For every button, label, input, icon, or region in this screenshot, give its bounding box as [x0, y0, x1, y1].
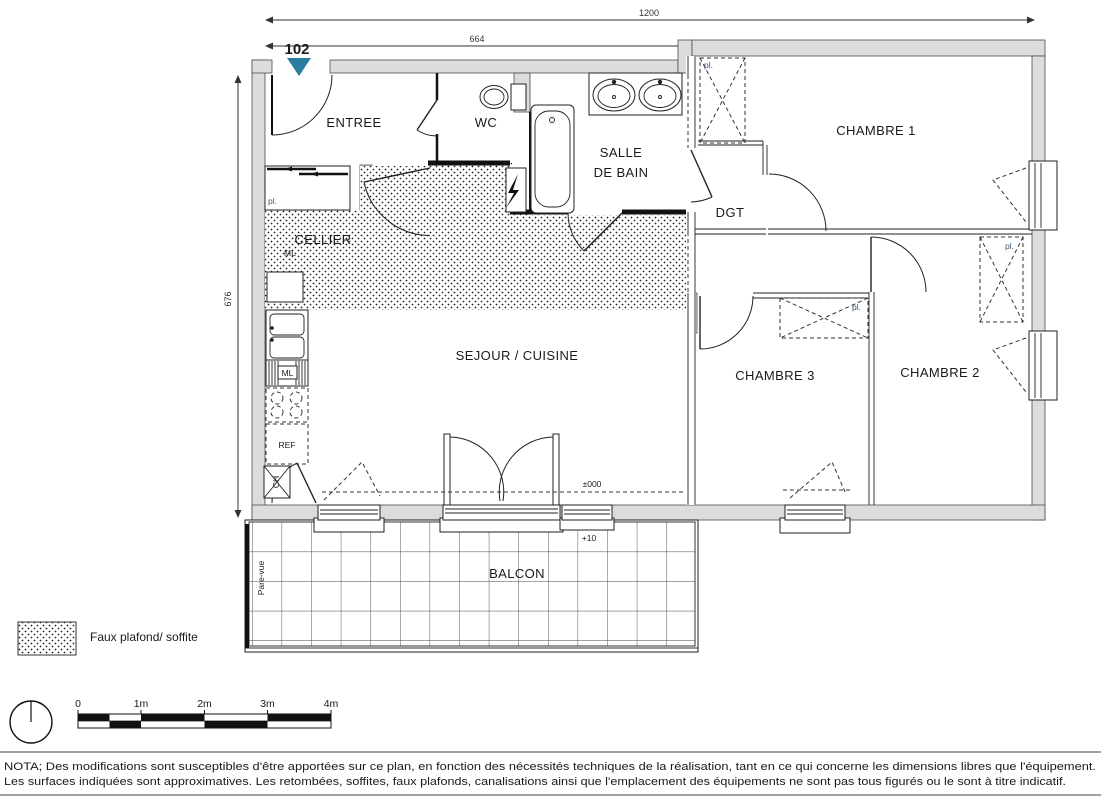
room-label-sdb-1: SALLE	[600, 145, 642, 160]
room-label-chambre1: CHAMBRE 1	[836, 123, 915, 138]
room-label-dgt: DGT	[716, 205, 745, 220]
svg-text:pl.: pl.	[1005, 241, 1014, 251]
boiler-icon: CH	[264, 466, 290, 498]
unit-number: 102	[284, 41, 309, 58]
svg-text:pl.: pl.	[704, 60, 713, 70]
scale-tick-0: 0	[75, 698, 81, 710]
privacy-screen-label: Pare-vue	[256, 560, 266, 595]
legend-label: Faux plafond/ soffite	[90, 630, 198, 644]
balcony-level: +10	[582, 533, 597, 543]
unit-entrance-marker-icon	[287, 58, 311, 76]
room-label-chambre2: CHAMBRE 2	[900, 365, 979, 380]
bathtub-icon	[531, 105, 574, 213]
french-door-balcony	[440, 434, 563, 532]
dimension-left-width: 664	[469, 34, 484, 44]
window-sejour-right	[560, 505, 614, 530]
room-label-wc: WC	[475, 115, 497, 130]
scale-tick-4: 4m	[324, 698, 339, 710]
closet-chambre1: pl.	[700, 58, 745, 143]
wc-fixture	[480, 84, 526, 110]
closet-chambre2: pl.	[980, 237, 1023, 322]
fridge-icon: REF	[266, 424, 308, 464]
nota-line-2: Les surfaces indiquées sont approximativ…	[4, 776, 1066, 788]
dimension-height: 676	[223, 291, 233, 306]
dimension-total-width: 1200	[639, 8, 659, 18]
boiler-label: CH	[271, 476, 281, 488]
fridge-label: REF	[279, 440, 296, 450]
closet-chambre3: pl.	[780, 298, 868, 338]
dishwasher-icon: ML	[266, 360, 308, 386]
nota-line-1: NOTA; Des modifications sont susceptible…	[4, 761, 1096, 773]
room-label-cellier: CELLIER	[295, 232, 352, 247]
electrical-panel-icon	[506, 168, 526, 212]
dishwasher-label: ML	[282, 368, 294, 378]
room-label-chambre3: CHAMBRE 3	[735, 368, 814, 383]
closets: pl. pl. pl.	[700, 58, 1023, 338]
window-chambre3	[780, 462, 850, 533]
room-label-sdb-2: DE BAIN	[594, 165, 649, 180]
room-label-sejour: SEJOUR / CUISINE	[456, 348, 579, 363]
scale-tick-1: 1m	[134, 698, 149, 710]
cellier-counter	[267, 272, 303, 302]
cellier-ml-label: ML	[284, 248, 296, 258]
floor-plan-page: 1200 664 676 102 Pare-vue BALCON +10	[0, 0, 1101, 800]
interior-level: ±000	[583, 479, 602, 489]
balcony: Pare-vue BALCON +10	[245, 520, 698, 652]
window-chambre1	[993, 161, 1057, 230]
privacy-screen	[245, 524, 249, 648]
legend: Faux plafond/ soffite	[18, 622, 198, 655]
legend-swatch	[18, 622, 76, 655]
double-sink-icon	[589, 73, 682, 115]
scale-bar: 0 1m 2m 3m 4m	[75, 698, 338, 728]
kitchen-sink-unit	[266, 310, 308, 360]
window-chambre2	[993, 331, 1057, 400]
room-label-entree: ENTREE	[326, 115, 381, 130]
balcony-grid	[249, 522, 695, 646]
floor-plan-drawing: 1200 664 676 102 Pare-vue BALCON +10	[0, 0, 1101, 800]
scale-tick-3: 3m	[260, 698, 275, 710]
north-indicator-icon	[10, 701, 52, 743]
scale-tick-2: 2m	[197, 698, 212, 710]
cooktop-icon	[266, 388, 308, 422]
closet-label: pl.	[268, 196, 277, 206]
room-label-balcon: BALCON	[489, 566, 545, 581]
nota-block: NOTA; Des modifications sont susceptible…	[0, 752, 1101, 795]
window-sejour-left	[314, 462, 384, 532]
svg-text:pl.: pl.	[852, 302, 861, 312]
